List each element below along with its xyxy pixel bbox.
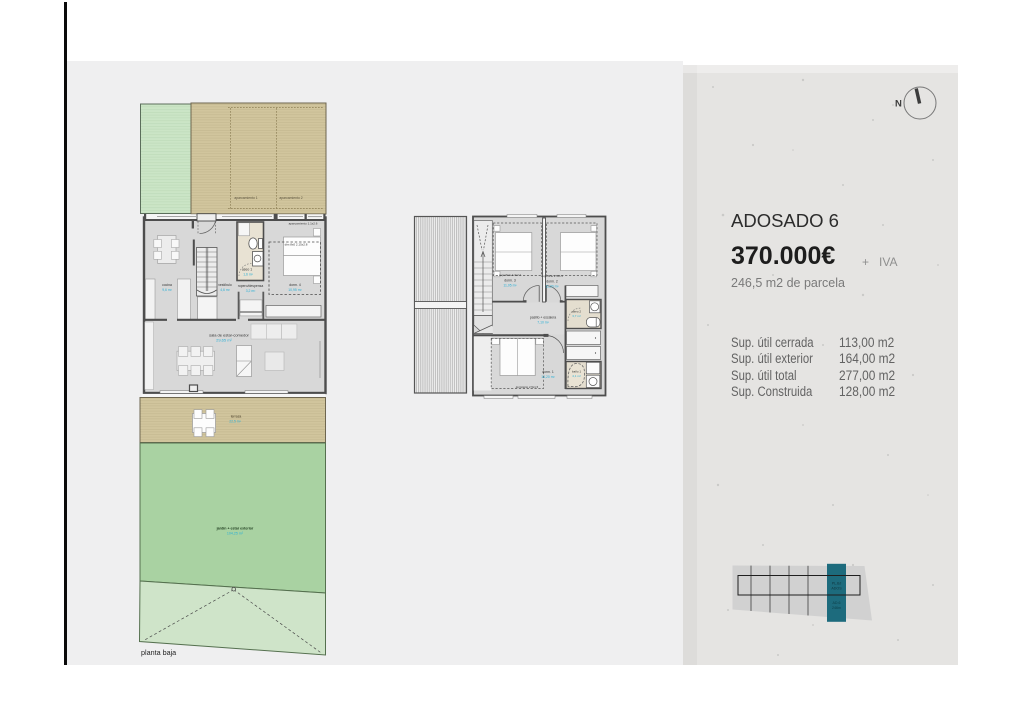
svg-text:246m: 246m: [832, 606, 841, 610]
svg-text:7,10 m²: 7,10 m²: [537, 321, 549, 325]
svg-text:4,1 m²: 4,1 m²: [572, 374, 581, 378]
svg-text:4,6 m²: 4,6 m²: [220, 288, 230, 292]
svg-text:104,25 m²: 104,25 m²: [227, 532, 244, 536]
svg-text:dim 8x0 2.15x2.8: dim 8x0 2.15x2.8: [285, 243, 308, 247]
svg-text:cocina: cocina: [162, 283, 172, 287]
svg-text:ADOS: ADOS: [831, 587, 842, 591]
svg-text:jardín + estar exterior: jardín + estar exterior: [216, 527, 254, 531]
svg-text:PL.BJ: PL.BJ: [832, 582, 842, 586]
svg-text:dorm. 3: dorm. 3: [504, 279, 516, 283]
svg-text:11,05 m²: 11,05 m²: [503, 284, 517, 288]
svg-text:29,65 m²: 29,65 m²: [216, 338, 232, 343]
svg-text:aseo 2: aseo 2: [572, 310, 581, 314]
svg-text:dorm. 1: dorm. 1: [542, 370, 554, 374]
svg-text:dorm. 4: dorm. 4: [289, 283, 301, 287]
svg-text:planta baja: planta baja: [141, 648, 176, 657]
svg-text:dormitorio 2.5x1.5: dormitorio 2.5x1.5: [516, 385, 539, 389]
svg-text:9,6 m²: 9,6 m²: [162, 288, 172, 292]
svg-text:3,7 m²: 3,7 m²: [572, 314, 581, 318]
svg-text:terraza: terraza: [231, 415, 242, 419]
svg-text:superficie 2.5x1.5: superficie 2.5x1.5: [541, 274, 563, 278]
svg-text:N: N: [895, 99, 902, 110]
svg-text:aseo 1: aseo 1: [242, 268, 252, 272]
svg-text:superficie 2.4x2.4: superficie 2.4x2.4: [499, 273, 521, 277]
svg-text:pasillo + escalera: pasillo + escalera: [530, 316, 556, 320]
svg-text:aparcamiento 2: aparcamiento 2: [279, 196, 302, 200]
svg-text:aparcamiento 1.1x2.6: aparcamiento 1.1x2.6: [289, 222, 318, 226]
svg-text:aparcamiento 1: aparcamiento 1: [234, 196, 257, 200]
svg-text:ropero/despensa: ropero/despensa: [238, 284, 264, 288]
svg-text:dorm. 2: dorm. 2: [546, 280, 558, 284]
svg-text:AD.6: AD.6: [833, 601, 841, 605]
svg-text:22,5 m²: 22,5 m²: [229, 420, 241, 424]
svg-text:vestíbulo: vestíbulo: [218, 283, 232, 287]
svg-text:baño 1: baño 1: [572, 370, 582, 374]
svg-text:11,20 m²: 11,20 m²: [545, 285, 559, 289]
svg-text:14,20 m²: 14,20 m²: [541, 375, 555, 379]
svg-text:1,6 m²: 1,6 m²: [243, 273, 253, 277]
svg-text:10,95 m²: 10,95 m²: [288, 288, 302, 292]
svg-text:3,2 m²: 3,2 m²: [246, 289, 256, 293]
